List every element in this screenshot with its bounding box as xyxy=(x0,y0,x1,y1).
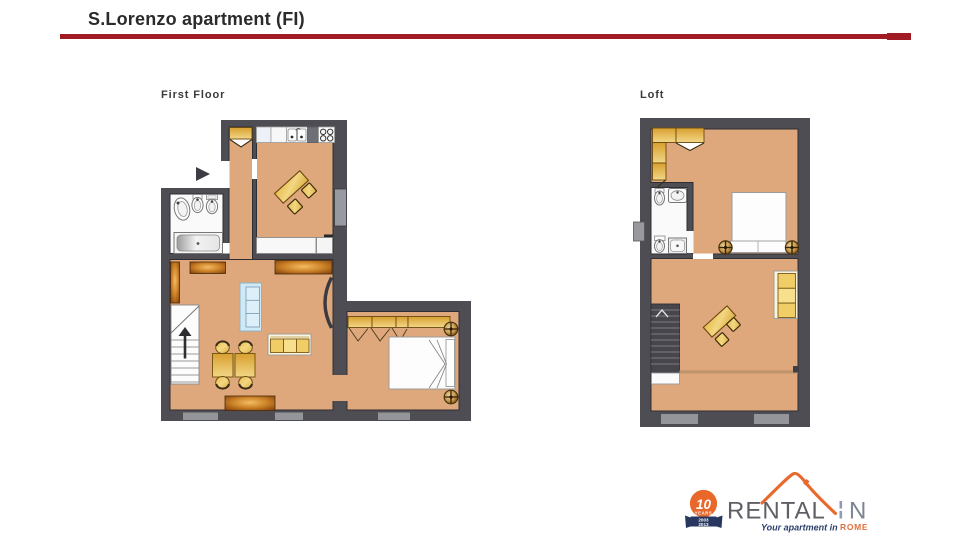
svg-text:YEARS: YEARS xyxy=(695,511,712,516)
svg-text:Your apartment in: Your apartment in xyxy=(761,523,838,533)
svg-text:ROME: ROME xyxy=(840,522,868,532)
svg-text:2013: 2013 xyxy=(698,522,709,527)
svg-text:N: N xyxy=(849,498,866,525)
svg-text:RENTAL: RENTAL xyxy=(727,498,826,525)
